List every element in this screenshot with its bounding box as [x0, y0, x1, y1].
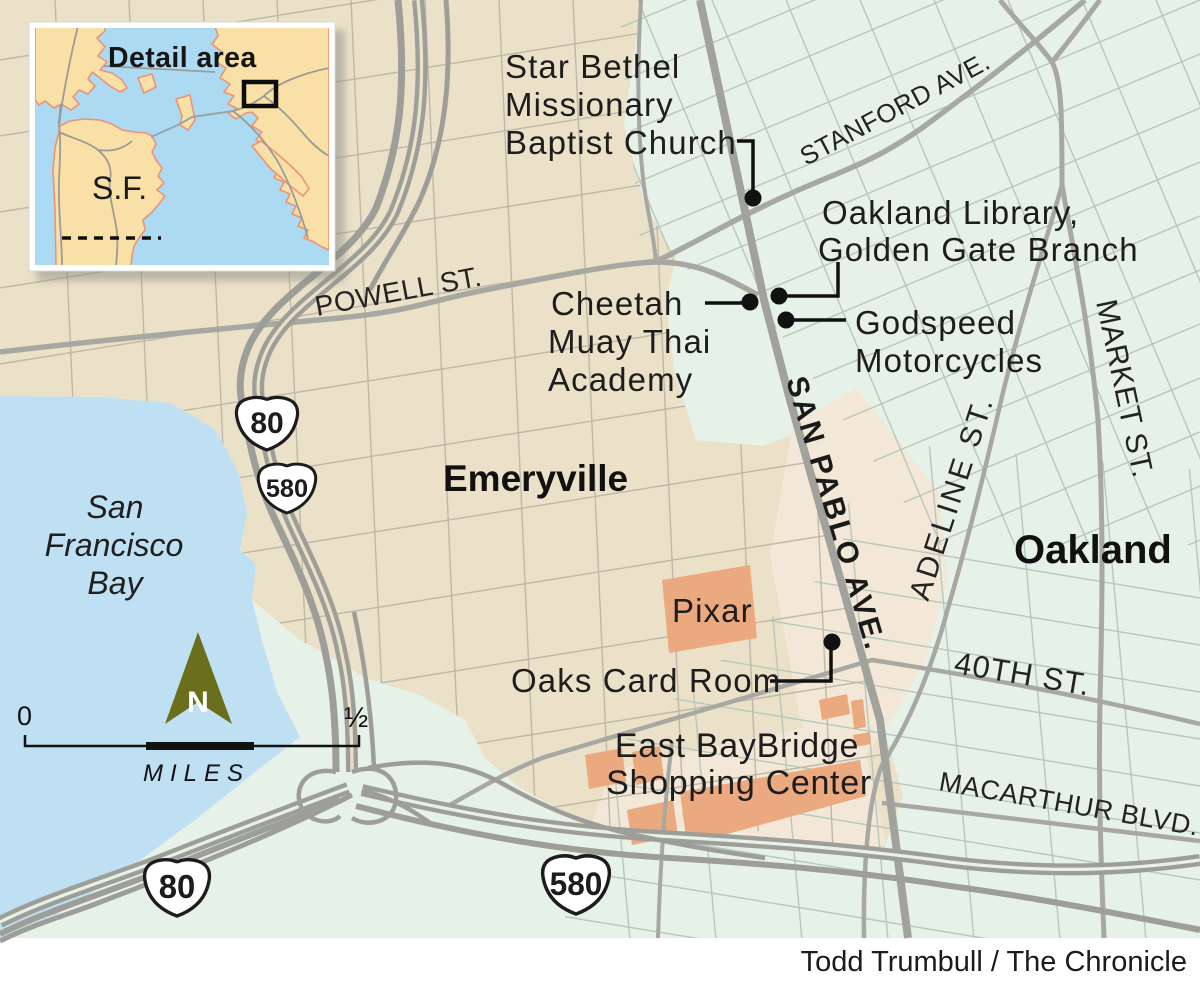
svg-text:Cheetah: Cheetah: [551, 285, 683, 322]
svg-text:Baptist Church: Baptist Church: [505, 124, 737, 161]
svg-text:Shopping Center: Shopping Center: [606, 764, 872, 802]
svg-text:Muay Thai: Muay Thai: [548, 323, 711, 360]
svg-text:Detail area: Detail area: [108, 42, 257, 74]
svg-text:MILES: MILES: [143, 760, 250, 787]
svg-text:San: San: [87, 489, 144, 525]
svg-text:Oaks Card Room: Oaks Card Room: [511, 662, 781, 699]
svg-text:0: 0: [17, 701, 32, 731]
svg-text:Star Bethel: Star Bethel: [505, 48, 680, 85]
svg-text:Emeryville: Emeryville: [443, 458, 628, 499]
svg-text:East BayBridge: East BayBridge: [615, 727, 859, 765]
svg-text:½: ½: [344, 702, 368, 734]
svg-text:Motorcycles: Motorcycles: [855, 342, 1043, 379]
svg-text:Oakland Library,: Oakland Library,: [822, 194, 1079, 231]
svg-text:80: 80: [250, 407, 283, 440]
svg-text:Academy: Academy: [548, 361, 693, 398]
svg-text:N: N: [187, 686, 209, 719]
svg-text:80: 80: [159, 868, 196, 905]
svg-text:Bay: Bay: [87, 565, 144, 601]
svg-text:580: 580: [550, 866, 603, 902]
svg-text:Francisco: Francisco: [45, 527, 184, 563]
svg-text:Pixar: Pixar: [672, 592, 753, 629]
svg-text:580: 580: [266, 475, 308, 503]
svg-text:Oakland: Oakland: [1014, 528, 1172, 572]
svg-text:Godspeed: Godspeed: [855, 304, 1016, 341]
svg-text:Todd Trumbull / The Chronicle: Todd Trumbull / The Chronicle: [801, 946, 1187, 978]
svg-text:S.F.: S.F.: [92, 170, 147, 206]
svg-text:Golden Gate Branch: Golden Gate Branch: [818, 231, 1139, 268]
svg-text:Missionary: Missionary: [505, 86, 674, 123]
